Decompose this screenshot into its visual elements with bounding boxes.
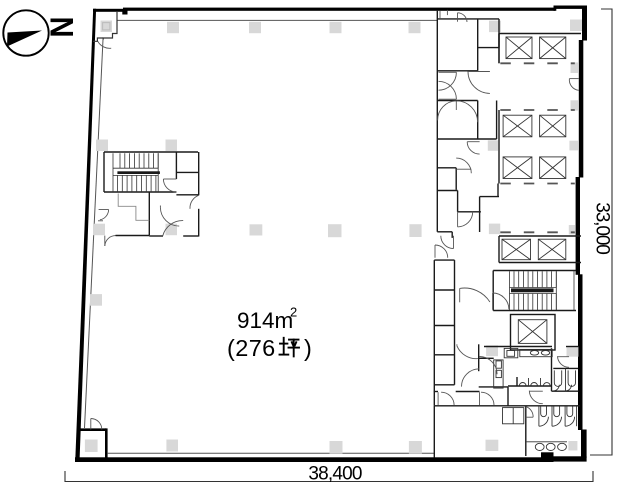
- svg-text:N: N: [43, 16, 80, 37]
- svg-text:914m: 914m: [237, 308, 293, 333]
- svg-text:): ): [304, 335, 312, 361]
- svg-text:33,000: 33,000: [591, 202, 612, 254]
- svg-text:(276: (276: [227, 335, 276, 361]
- svg-text:2: 2: [290, 305, 297, 320]
- svg-text:38,400: 38,400: [308, 464, 362, 485]
